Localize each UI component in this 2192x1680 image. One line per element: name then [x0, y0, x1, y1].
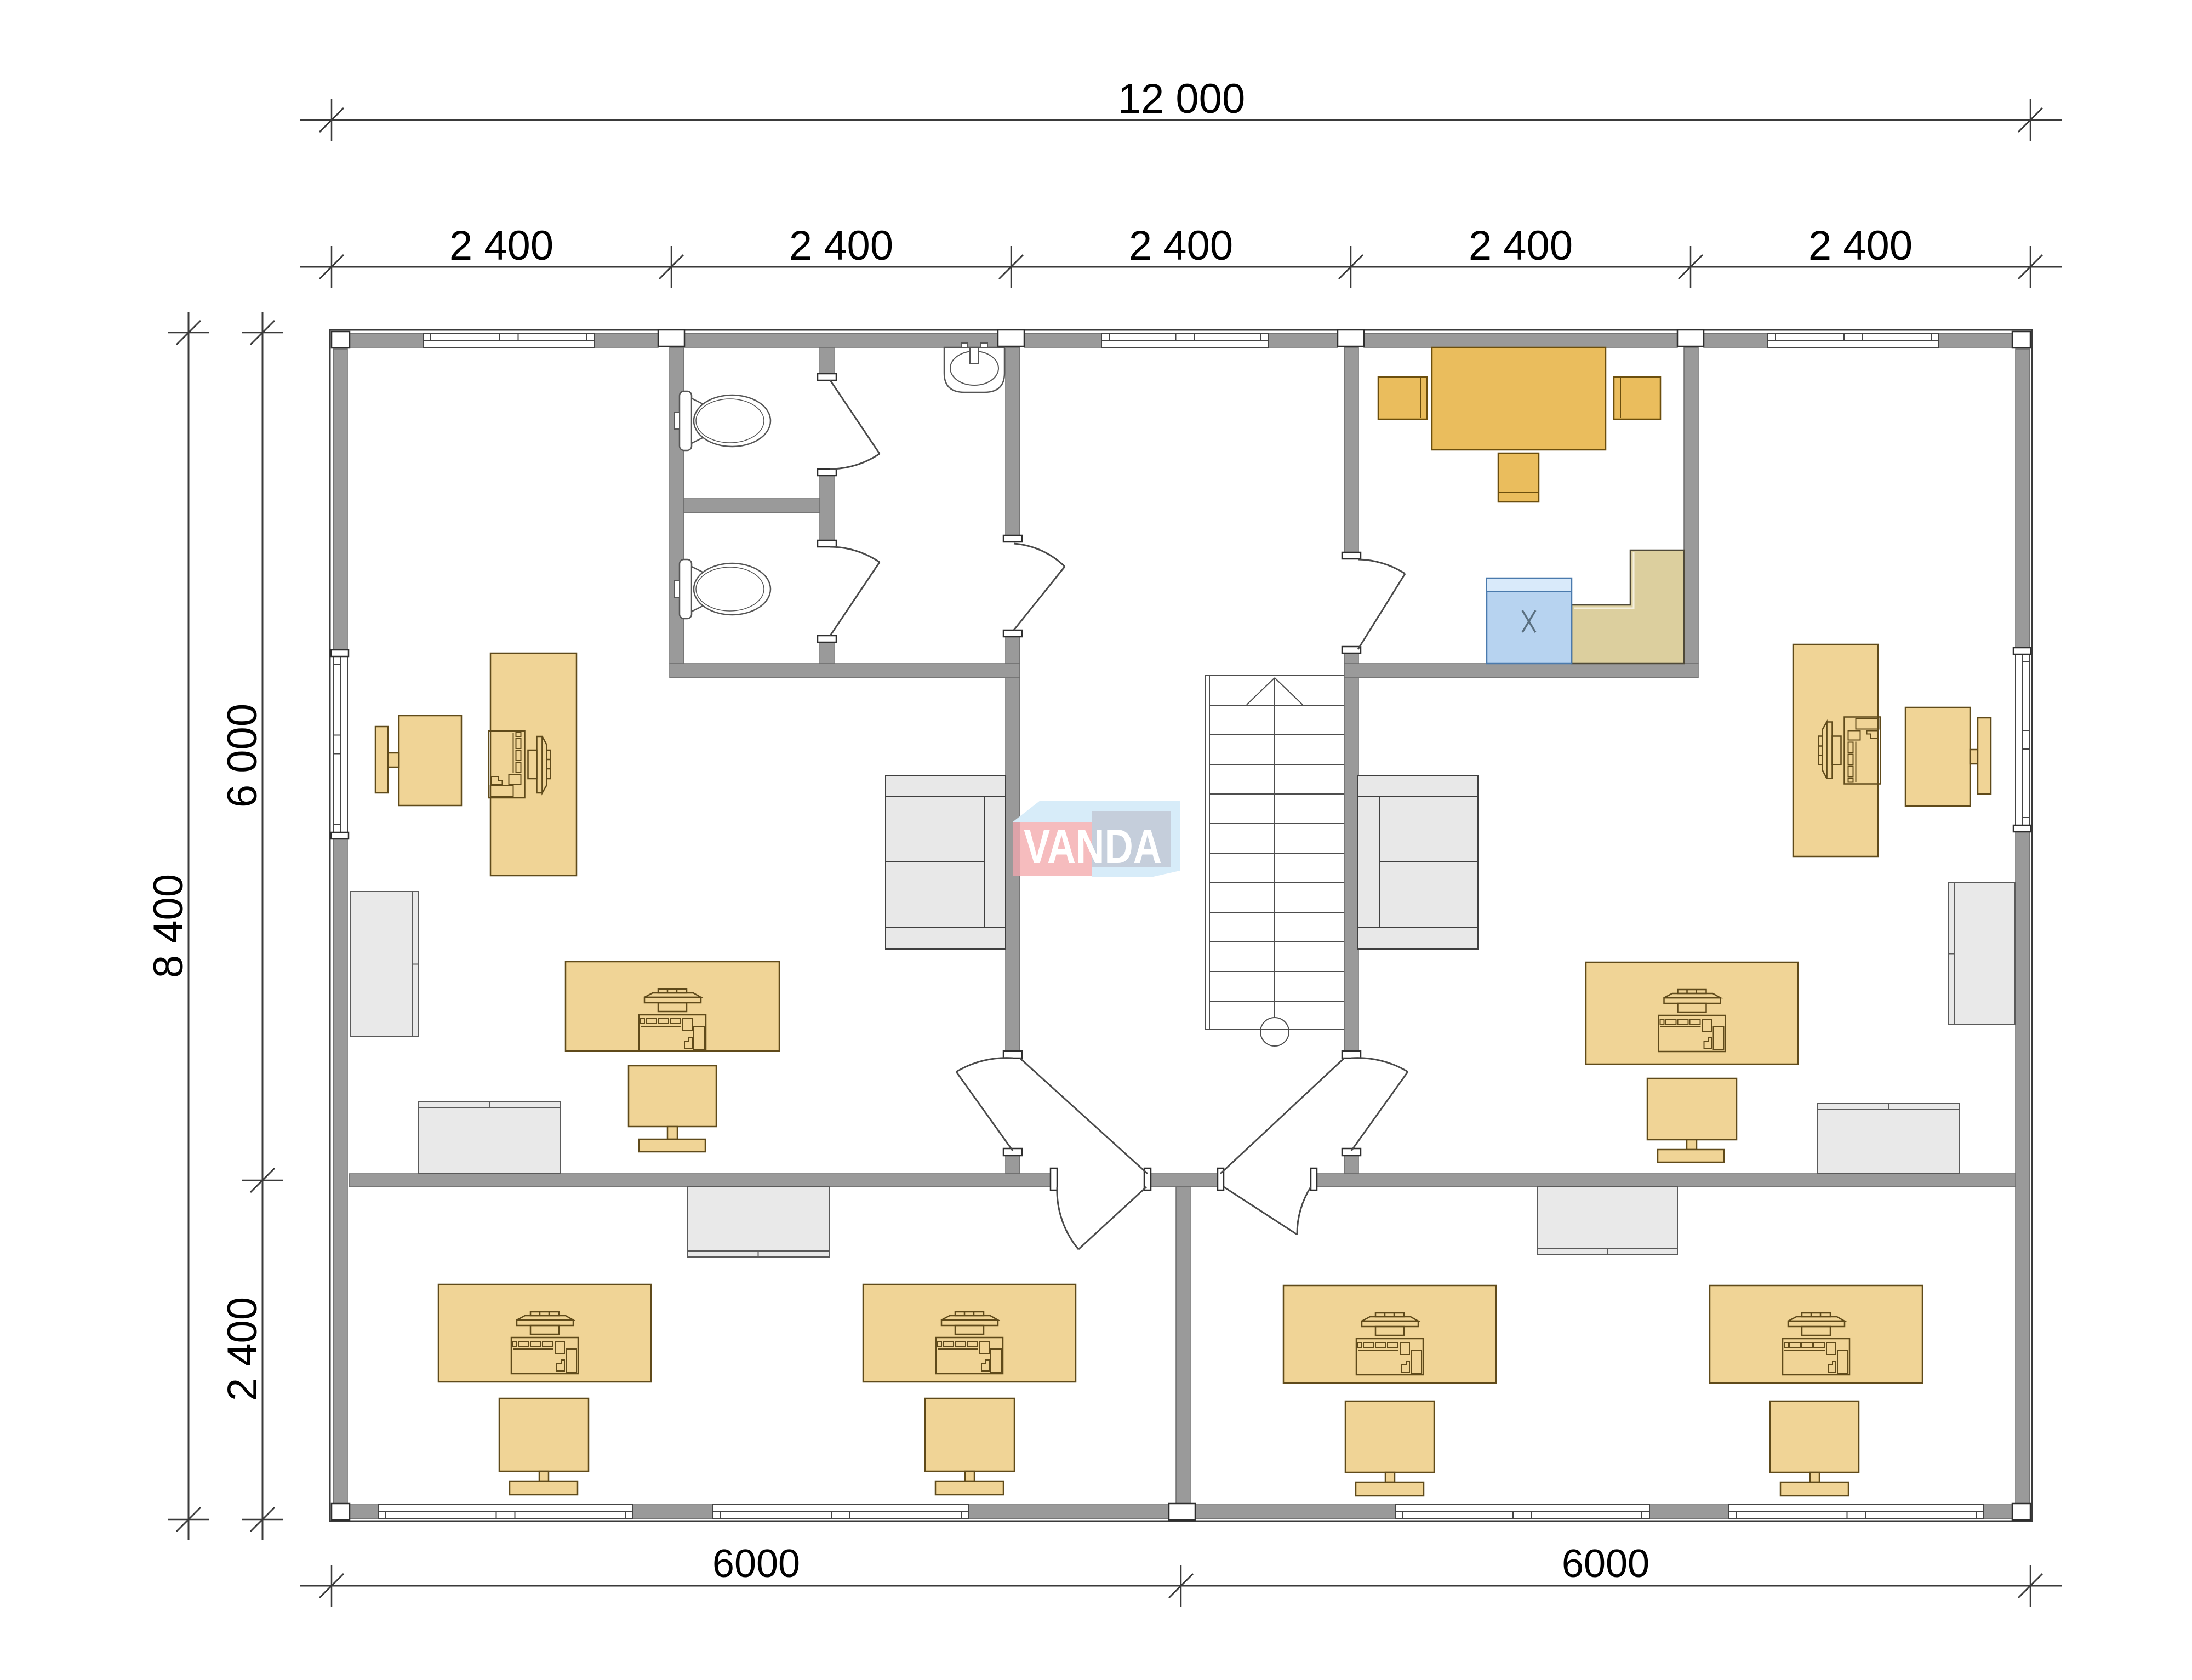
svg-text:2 400: 2 400 — [1129, 222, 1233, 269]
svg-text:6 000: 6 000 — [219, 704, 266, 808]
svg-text:12 000: 12 000 — [1118, 76, 1245, 122]
svg-text:2 400: 2 400 — [1469, 222, 1573, 269]
svg-text:2 400: 2 400 — [219, 1297, 266, 1401]
svg-text:2 400: 2 400 — [1808, 222, 1913, 269]
svg-text:2 400: 2 400 — [789, 222, 893, 269]
svg-text:2 400: 2 400 — [449, 222, 553, 269]
svg-text:8 400: 8 400 — [145, 874, 192, 978]
svg-text:VANDA: VANDA — [1024, 819, 1162, 873]
svg-text:6000: 6000 — [712, 1542, 800, 1586]
svg-text:6000: 6000 — [1562, 1542, 1649, 1586]
